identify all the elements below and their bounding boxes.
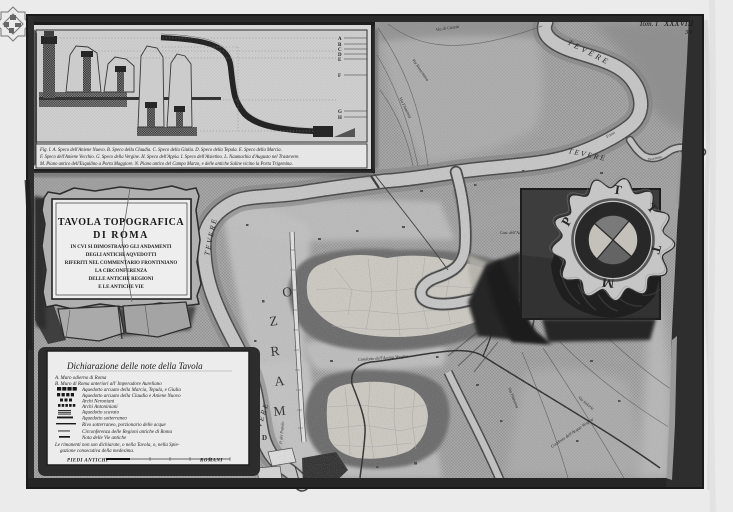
svg-text:DI ROMA: DI ROMA (93, 230, 149, 241)
svg-text:A. Muro odierno di Roma: A. Muro odierno di Roma (54, 376, 107, 381)
svg-text:ROMANI: ROMANI (200, 459, 223, 464)
svg-text:M. Piano antico dell'Esquilino: M. Piano antico dell'Esquilino a Porta M… (39, 162, 293, 167)
svg-text:DELLE ANTICHE REGIONI: DELLE ANTICHE REGIONI (89, 277, 154, 282)
svg-text:Archi Antoniniani: Archi Antoniniani (81, 405, 118, 410)
svg-text:TAVOLA TOPOGRAFICA: TAVOLA TOPOGRAFICA (58, 217, 184, 228)
svg-text:Aquedotto arcuato della Marcia: Aquedotto arcuato della Marcia, Tepula, … (81, 388, 181, 393)
svg-text:Aquedotto scavato: Aquedotto scavato (81, 411, 120, 416)
svg-text:Nota delle Vie antiche: Nota delle Vie antiche (81, 436, 127, 441)
svg-text:Archi Neroniani: Archi Neroniani (81, 400, 115, 405)
svg-text:Circonferenza delle Regioni an: Circonferenza delle Regioni antiche di R… (82, 430, 173, 435)
svg-text:B. Muro di Roma anteriori all': B. Muro di Roma anteriori all' Imperador… (55, 382, 162, 387)
svg-text:F: F (338, 74, 341, 79)
svg-text:39: 39 (684, 29, 692, 36)
svg-text:M: M (601, 275, 615, 291)
svg-text:F. Speco dell'Aniene Vecchio.: F. Speco dell'Aniene Vecchio. G. Speco d… (39, 155, 300, 160)
svg-text:Aquedotto arcuato della Claudi: Aquedotto arcuato della Claudia e Aniene… (81, 394, 181, 399)
svg-text:A: A (338, 37, 342, 42)
svg-text:RIFERITI NEL COMMENTARIO FRONT: RIFERITI NEL COMMENTARIO FRONTINIANO (65, 261, 178, 266)
svg-text:gazione consecutiva della mede: gazione consecutiva della medesima. (60, 449, 134, 454)
svg-text:E LE ANTICHE VIE: E LE ANTICHE VIE (98, 285, 144, 290)
svg-text:Aquedotto sotterraneo: Aquedotto sotterraneo (81, 417, 127, 422)
svg-text:G: G (338, 110, 342, 115)
svg-text:Le rimanenti non son dichiarat: Le rimanenti non son dichiarate, o nella… (54, 443, 180, 448)
svg-text:Fig. I. A. Speco dell'Aniene: Fig. I. A. Speco dell'Aniene Nuovo. B. S… (39, 148, 282, 153)
svg-text:Rivo sotterraneo, porzionario: Rivo sotterraneo, porzionario delle acqu… (81, 423, 167, 428)
svg-text:Dichiarazione delle note de: Dichiarazione delle note della Tavola (66, 361, 203, 371)
svg-text:XXXVIII: XXXVIII (663, 18, 694, 28)
svg-text:H: H (338, 116, 342, 121)
svg-text:LA CIRCONFERENZA: LA CIRCONFERENZA (95, 269, 147, 274)
svg-text:Tom. I: Tom. I (639, 19, 658, 28)
svg-text:PIEDI ANTICHI: PIEDI ANTICHI (67, 459, 109, 464)
svg-text:IN CVI SI DIMOSTRANO GLI ANDAM: IN CVI SI DIMOSTRANO GLI ANDAMENTI (71, 245, 172, 250)
svg-text:DEGLI ANTICHI AQVEDOTTI: DEGLI ANTICHI AQVEDOTTI (86, 253, 157, 258)
